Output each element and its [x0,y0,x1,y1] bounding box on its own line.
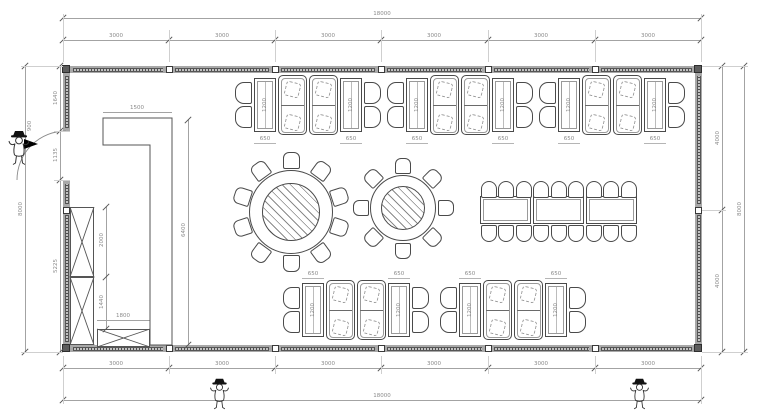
dim-label: 8000 [18,202,24,216]
chair [387,106,404,128]
floor-plan: 18000 3000 3000 3000 3000 3000 3000 1800… [0,0,772,414]
dim-label: 8000 [737,202,743,216]
banquet-table [480,196,531,224]
table-width-dim-line [302,278,324,279]
dim-label: 3000 [427,33,441,39]
top-segment-dim-line [63,40,701,41]
window-band [601,68,692,72]
window-band [697,215,701,342]
chair [353,200,369,216]
chair [603,225,619,242]
window-band [387,347,482,351]
left-segment-dim-line [60,66,61,352]
cabinet-dim-line [106,207,107,329]
booth-sofa [514,280,543,340]
chair [412,311,429,333]
booth-divider [360,310,383,311]
column [272,345,279,352]
extension-line [275,30,276,62]
booth-divider [616,105,639,106]
entry-arrow-icon [24,139,38,149]
column [63,207,70,214]
extension-line [488,30,489,62]
chair [412,287,429,309]
counter-arm-dim-line [103,112,172,113]
banquet-table [533,196,584,224]
side-counter-dim-line [97,320,150,321]
lazy-susan [381,186,425,230]
chair [283,255,300,272]
seat-cushion [331,318,349,336]
table-width-label: 650 [551,271,562,277]
extension-line [169,30,170,62]
chair [481,181,497,198]
chair [539,82,556,104]
booth-divider [464,105,487,106]
column [592,66,599,73]
extension-line [381,356,382,374]
extension-line [702,66,748,67]
table-width-dim-line [459,278,481,279]
chair [539,106,556,128]
corner-column [694,344,702,352]
chair [569,287,586,309]
window-band [73,347,163,351]
column [272,66,279,73]
corner-column [62,65,70,73]
window-band [175,347,269,351]
column [378,66,385,73]
chair [569,311,586,333]
booth-divider [585,105,608,106]
chair [586,225,602,242]
chair [516,106,533,128]
chair [668,82,685,104]
chair [395,158,411,174]
chair [440,311,457,333]
table-length-label: 1200 [310,303,316,317]
window-band [65,215,69,342]
table-width-dim-line [492,143,514,144]
table-width-label: 650 [394,271,405,277]
table-length-label: 1200 [652,98,658,112]
dim-label: 3000 [109,361,123,367]
table-length-label: 1200 [262,98,268,112]
dim-label: 1500 [130,105,144,111]
chair [551,181,567,198]
dim-label: 18000 [373,11,391,17]
extension-line [275,356,276,374]
table-width-dim-line [545,278,567,279]
extension-line [54,180,70,181]
seat-cushion [587,113,605,131]
table-width-dim-line [388,278,410,279]
table-width-label: 650 [308,271,319,277]
chair [329,217,350,238]
table-width-label: 650 [346,136,357,142]
booth-sofa [357,280,386,340]
dim-label: 6400 [181,223,187,237]
window-band [65,184,69,204]
seat-cushion [314,113,332,131]
chair [283,287,300,309]
dim-label: 2000 [99,233,105,247]
booth-divider [486,310,509,311]
booth-sofa [430,75,459,135]
right-total-dim-line [744,66,745,352]
seat-cushion [618,113,636,131]
booth-divider [433,105,456,106]
chair [586,181,602,198]
wall-cabinet-lower [70,277,94,345]
person-icon [9,131,29,165]
table-length-label: 1200 [348,98,354,112]
chair [551,225,567,242]
banquet-table [586,196,637,224]
extension-line [595,356,596,374]
seat-cushion [435,80,453,98]
table-length-label: 1200 [467,303,473,317]
extension-line [169,356,170,374]
extension-line [381,30,382,62]
chair [533,225,549,242]
dim-label: 4000 [715,274,721,288]
seat-cushion [466,113,484,131]
dim-label: 3000 [641,33,655,39]
chair [516,181,532,198]
chair [516,82,533,104]
seat-cushion [587,80,605,98]
window-band [387,68,482,72]
booth-sofa [483,280,512,340]
dim-label: 1800 [116,313,130,319]
lazy-susan [262,183,320,241]
column [592,345,599,352]
chair [364,82,381,104]
window-band [494,68,589,72]
counter-run-dim-line [188,120,189,345]
booth-sofa [461,75,490,135]
seat-cushion [488,318,506,336]
table-width-dim-line [406,143,428,144]
chair [481,225,497,242]
column [166,66,173,73]
dim-label: 3000 [427,361,441,367]
seat-cushion [435,113,453,131]
booth-divider [329,310,352,311]
seat-cushion [519,285,537,303]
table-length-label: 1200 [566,98,572,112]
extension-line [595,30,596,62]
table-width-dim-line [558,143,580,144]
table-width-label: 650 [650,136,661,142]
table-width-label: 650 [498,136,509,142]
booth-divider [517,310,540,311]
chair [440,287,457,309]
seat-cushion [519,318,537,336]
chair [621,225,637,242]
chair [668,106,685,128]
side-counter [97,329,150,347]
extension-line [702,210,726,211]
column [695,207,702,214]
column [485,345,492,352]
chair [387,82,404,104]
seat-cushion [314,80,332,98]
dim-label: 3000 [321,33,335,39]
table-width-label: 650 [564,136,575,142]
bottom-total-dim-line [63,400,701,401]
chair [533,181,549,198]
chair [568,225,584,242]
seat-cushion [283,113,301,131]
window-band [494,347,589,351]
extension-line [63,356,64,404]
column [166,345,173,352]
seat-cushion [488,285,506,303]
booth-divider [281,105,304,106]
dim-label: 3000 [641,361,655,367]
dim-label: 5225 [53,259,59,273]
chair [516,225,532,242]
left-total-dim-line [25,66,26,352]
seat-cushion [618,80,636,98]
seat-cushion [466,80,484,98]
booth-sofa [278,75,307,135]
dim-label: 3000 [215,33,229,39]
extension-line [21,352,63,353]
booth-sofa [326,280,355,340]
extension-line [702,352,748,353]
table-length-label: 1200 [414,98,420,112]
chair [283,152,300,169]
seat-cushion [362,285,380,303]
door-leaf-label: 900 [27,121,33,132]
dim-label: 3000 [321,361,335,367]
window-band [175,68,269,72]
extension-line [21,66,63,67]
table-width-dim-line [340,143,362,144]
chair [568,181,584,198]
booth-sofa [309,75,338,135]
window-band [281,68,375,72]
table-width-dim-line [644,143,666,144]
chair [235,82,252,104]
seat-cushion [362,318,380,336]
seat-cushion [331,285,349,303]
table-width-label: 650 [465,271,476,277]
chair [498,181,514,198]
booth-divider [312,105,335,106]
dim-label: 3000 [215,361,229,367]
dim-label: 3000 [534,361,548,367]
window-band [73,68,163,72]
chair [395,243,411,259]
extension-line [54,131,70,132]
table-length-label: 1200 [396,303,402,317]
column [378,345,385,352]
table-width-label: 650 [260,136,271,142]
table-width-label: 650 [412,136,423,142]
dim-label: 4000 [715,131,721,145]
dim-label: 1135 [53,148,59,162]
window-band [697,76,701,204]
extension-line [63,14,64,62]
chair [621,181,637,198]
extension-line [488,356,489,374]
window-band [601,347,692,351]
booth-sofa [582,75,611,135]
chair [603,181,619,198]
chair [438,200,454,216]
dim-label: 3000 [534,33,548,39]
wall-cabinet-upper [70,207,94,277]
person-icon [211,379,229,409]
dim-label: 3000 [109,33,123,39]
top-total-dim-line [63,18,701,19]
table-width-dim-line [254,143,276,144]
table-length-label: 1200 [553,303,559,317]
chair [329,185,350,206]
chair [364,106,381,128]
chair [498,225,514,242]
dim-label: 1640 [53,91,59,105]
dim-label: 18000 [373,393,391,399]
seat-cushion [283,80,301,98]
table-length-label: 1200 [500,98,506,112]
column [485,66,492,73]
bottom-segment-dim-line [63,368,701,369]
corner-column [694,65,702,73]
window-band [281,347,375,351]
window-band [65,76,69,128]
extension-line [701,356,702,404]
person-icon [631,379,649,409]
booth-sofa [613,75,642,135]
dim-label: 1440 [99,295,105,309]
chair [283,311,300,333]
extension-line [701,14,702,62]
chair [235,106,252,128]
l-shaped-counter [103,118,172,345]
